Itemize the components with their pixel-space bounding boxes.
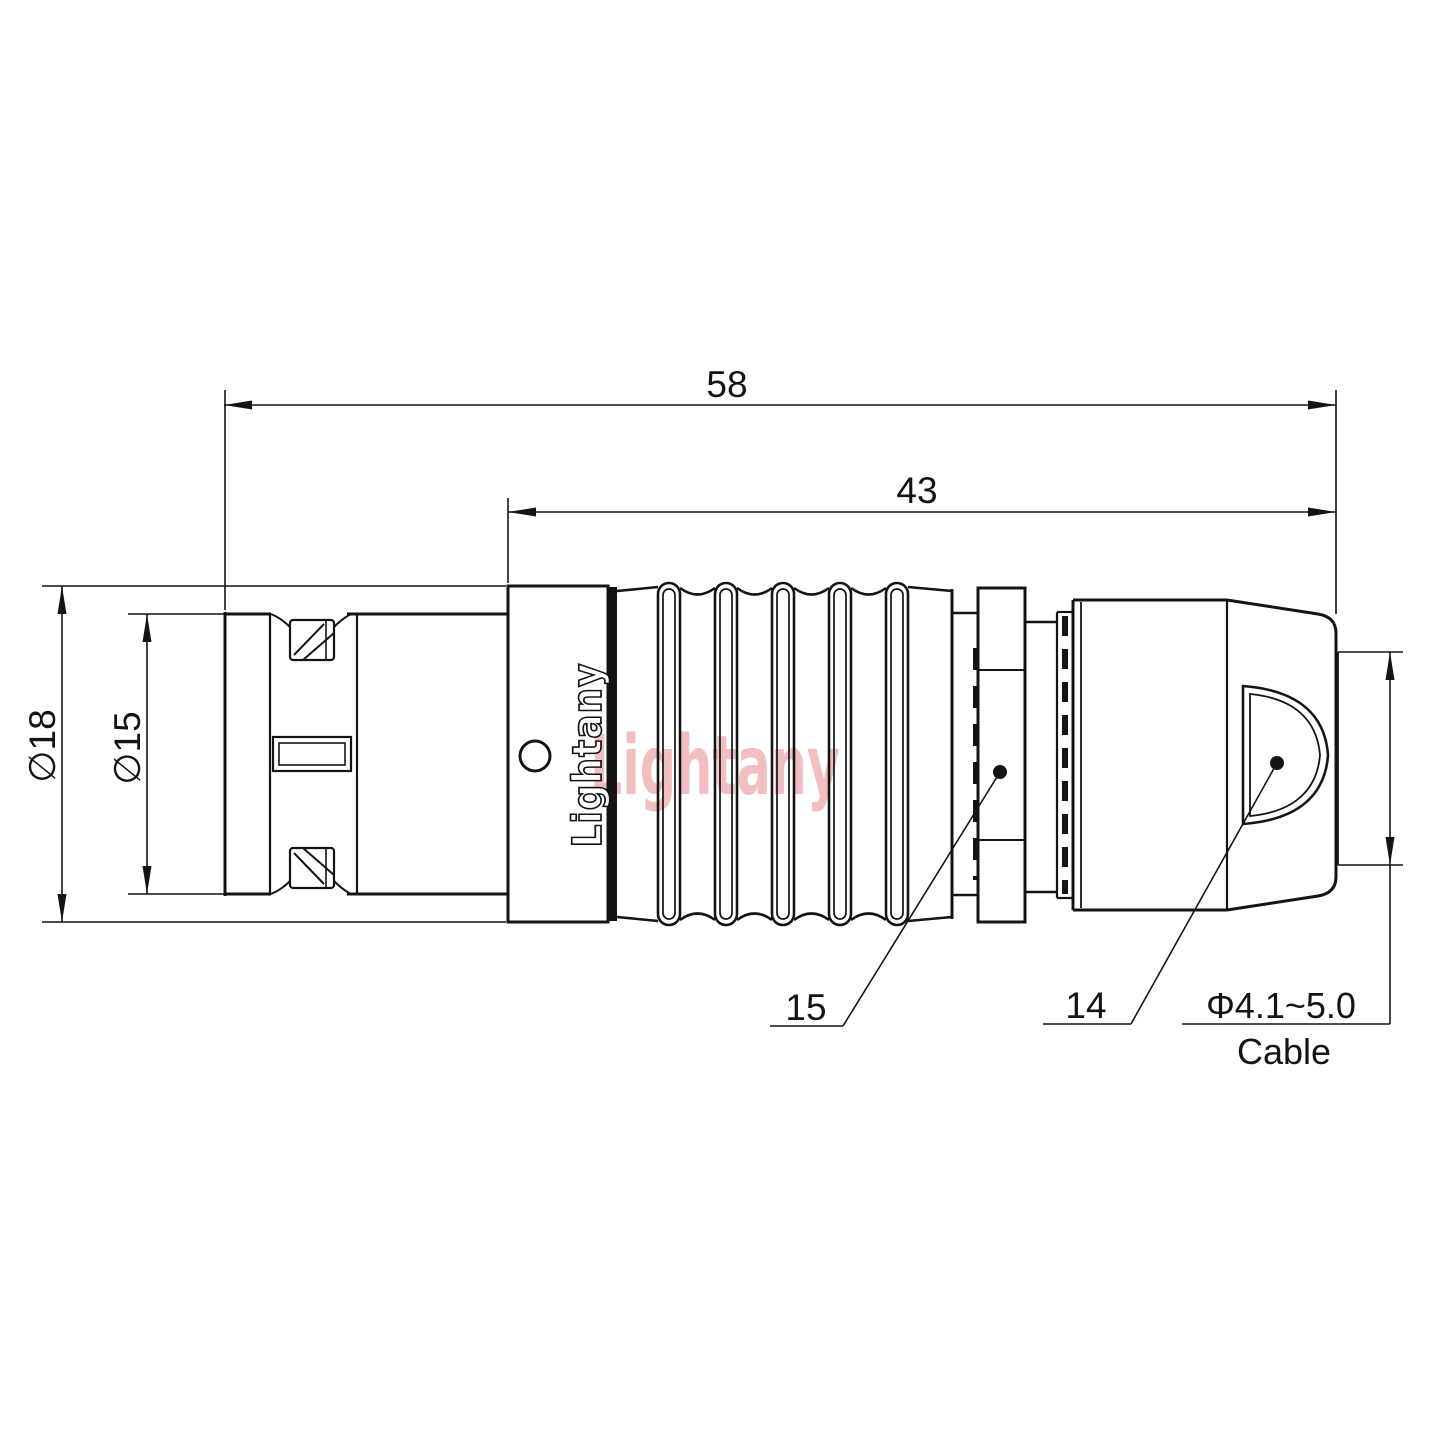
technical-drawing-page: Lightany 58 43 ∅18 ∅15 [0,0,1440,1440]
dimension-value-d18: ∅18 [22,709,63,782]
part-number-14: 14 [1065,985,1106,1026]
part-number-15: 15 [785,987,826,1028]
dimension-value-58: 58 [706,364,747,405]
brand-text: Lightany [565,663,611,848]
cable-caption: Cable [1237,1031,1331,1072]
connector-drawing: Lightany 58 43 ∅18 ∅15 [0,0,1440,1440]
cable-diameter-range: Φ4.1~5.0 [1206,985,1356,1026]
body-dark-band [609,587,617,921]
dimension-value-43: 43 [896,470,937,511]
dimension-value-d15: ∅15 [107,711,148,784]
